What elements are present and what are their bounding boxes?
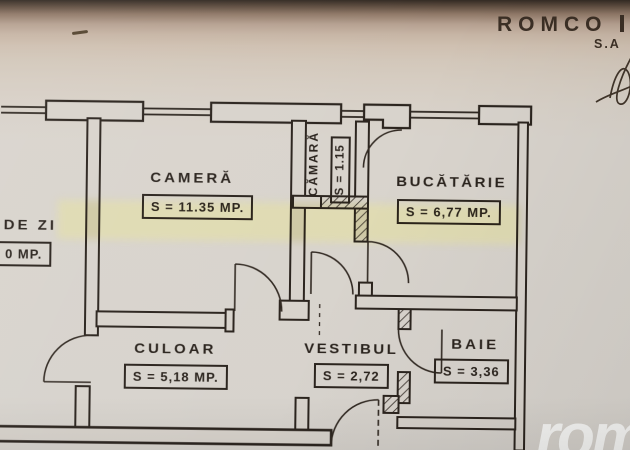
- room-label-vestibul: VESTIBUL: [304, 340, 398, 357]
- walls: [75, 117, 528, 450]
- room-area-camara: S = 1.15: [330, 136, 351, 203]
- wall-piers: [46, 101, 531, 130]
- room-area-culoar: S = 5,18 MP.: [124, 364, 228, 390]
- room-area-bucatarie: S = 6,77 MP.: [397, 199, 501, 225]
- room-label-culoar: CULOAR: [134, 340, 216, 357]
- room-area-camera: S = 11.35 MP.: [142, 194, 254, 220]
- room-label-camera: CAMERĂ: [150, 169, 234, 186]
- floor-plan-photo: ROMCO S.A: [0, 0, 630, 450]
- floor-plan: CAMERĂ S = 11.35 MP. CĂMARĂ S = 1.15 BUC…: [0, 0, 630, 450]
- room-area-vestibul: S = 2,72: [314, 363, 389, 389]
- room-label-baie: BAIE: [451, 336, 499, 353]
- exterior-bottom-wall: [0, 426, 331, 445]
- room-label-bucatarie: BUCĂTĂRIE: [396, 173, 507, 191]
- room-area-baie: S = 3,36: [434, 358, 509, 384]
- room-area-de-zi: 0 MP.: [0, 240, 52, 266]
- room-label-camara: CĂMARĂ: [306, 131, 321, 196]
- room-label-de-zi: DE ZI: [4, 217, 58, 234]
- watermark-text: rom: [536, 401, 630, 450]
